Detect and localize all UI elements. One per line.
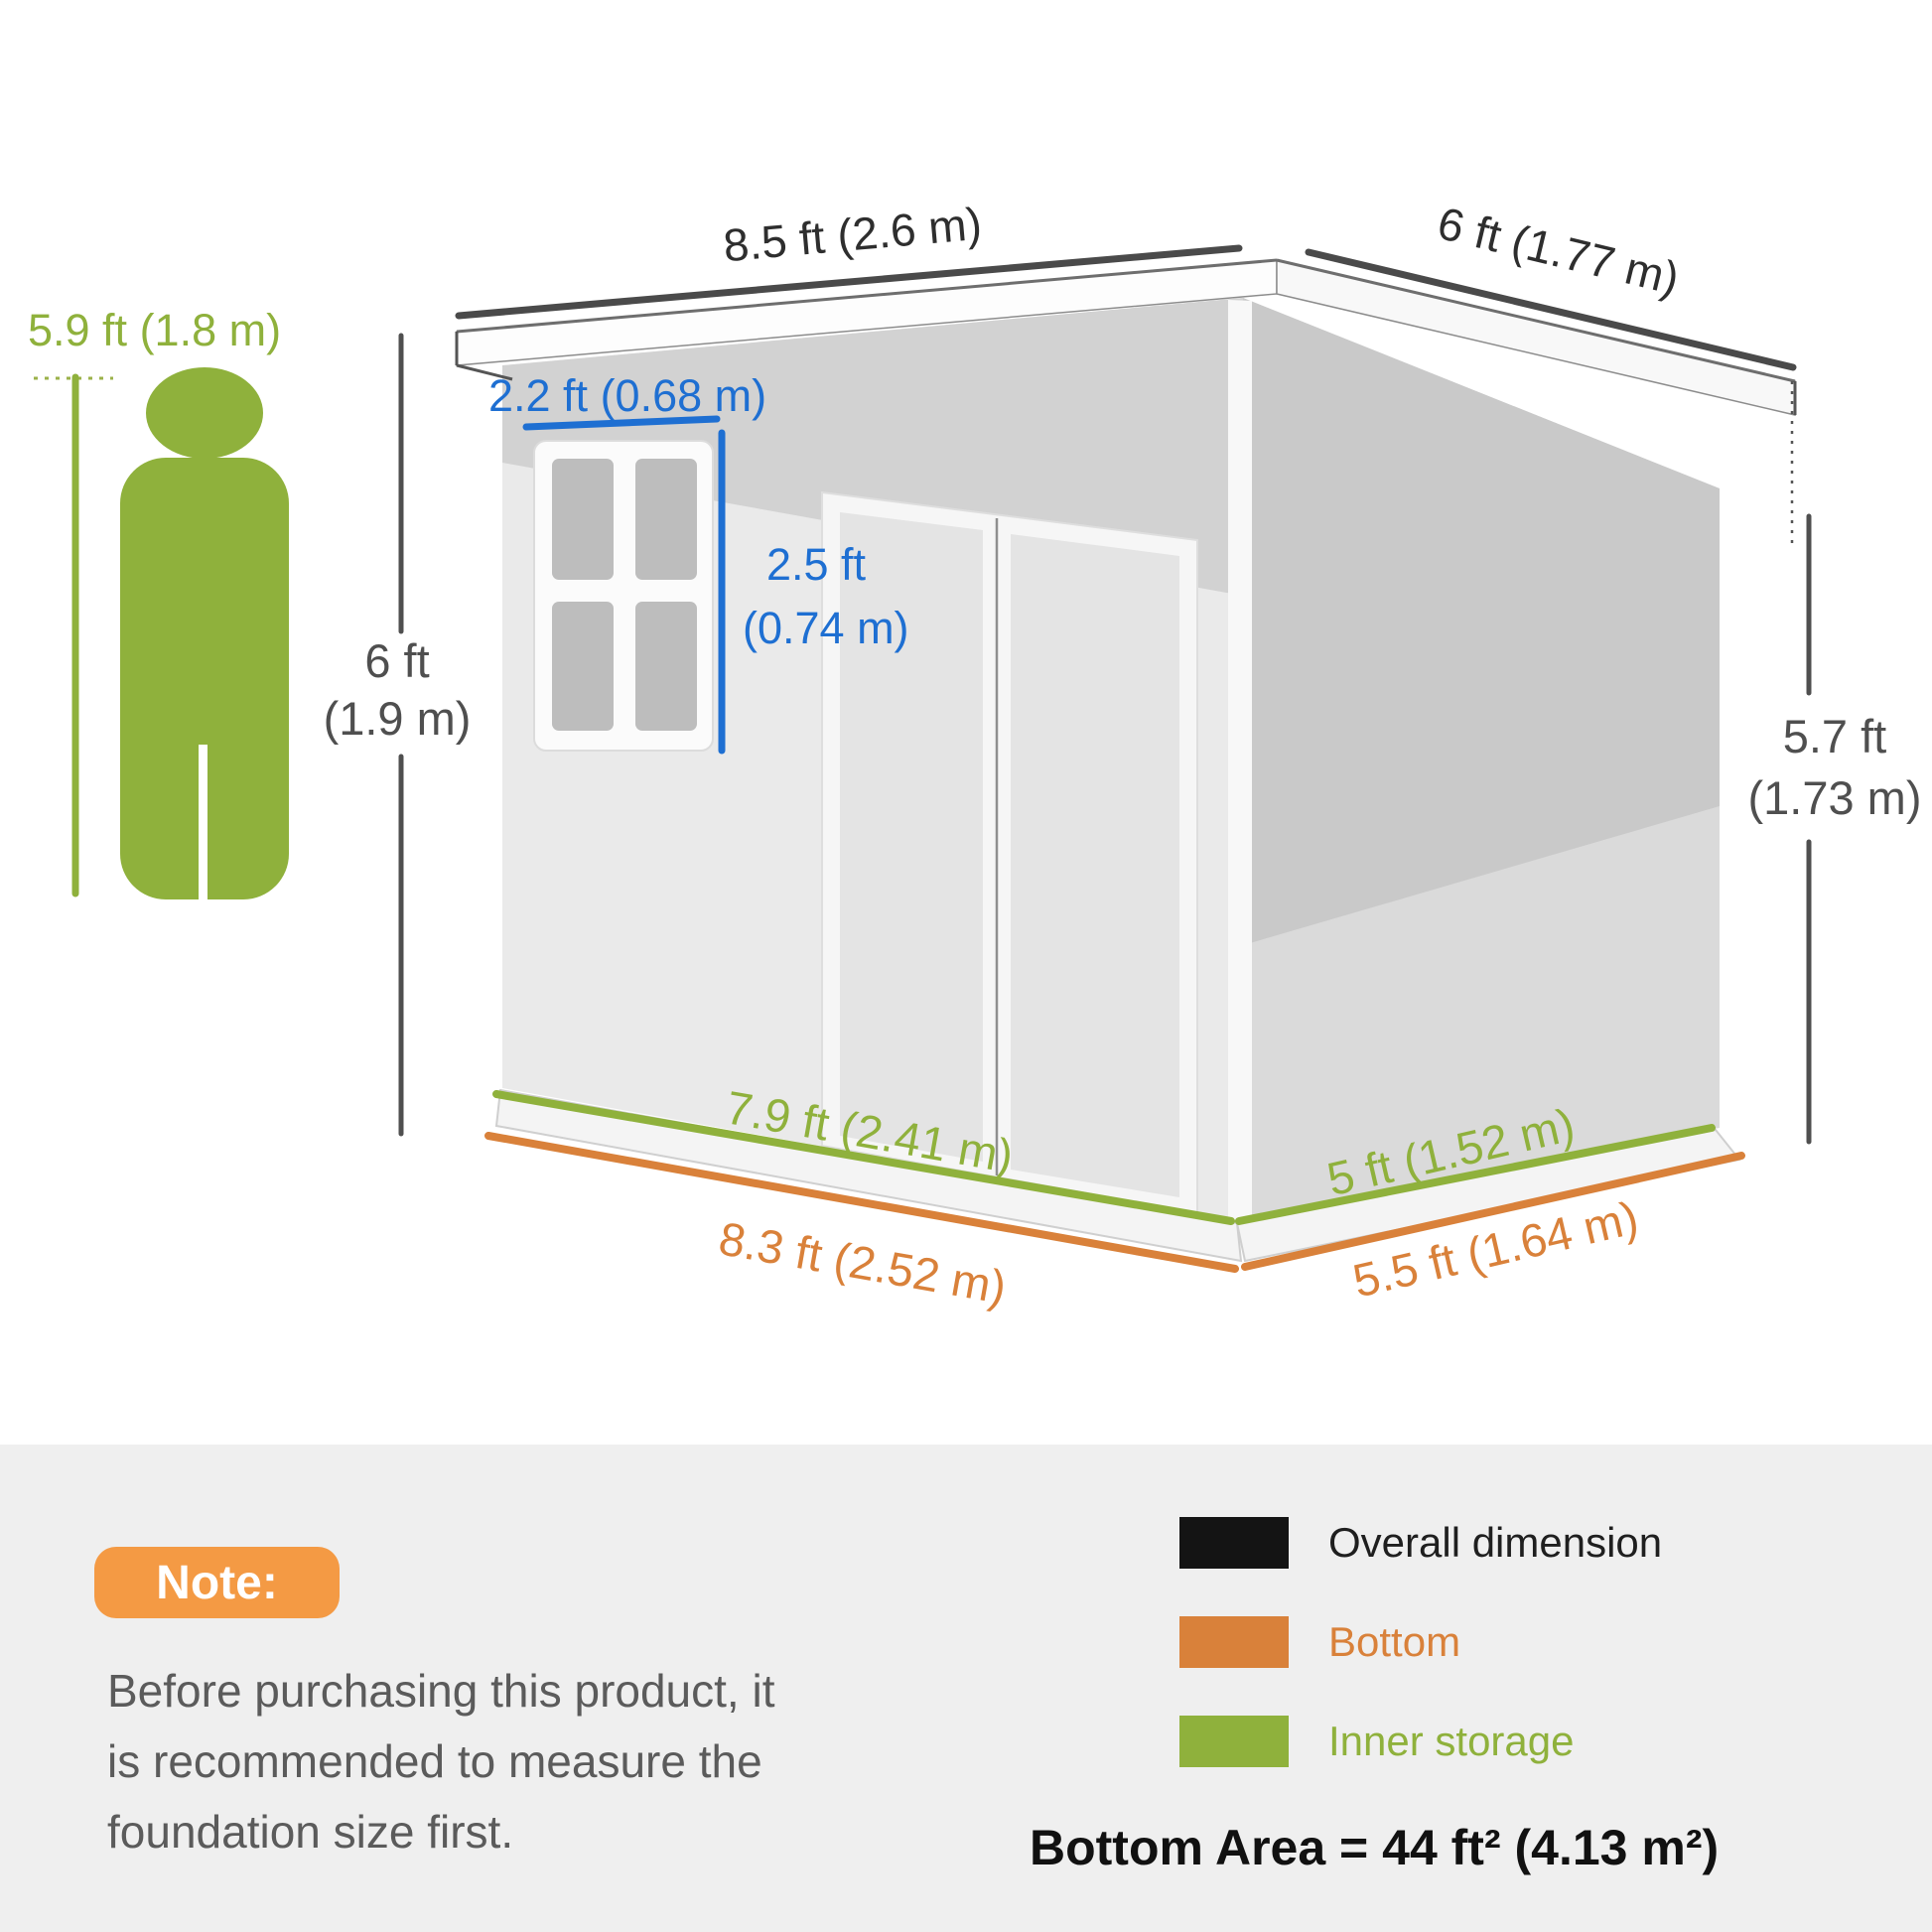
legend-label-inner-storage: Inner storage	[1328, 1716, 1575, 1767]
window-height-label-line2: (0.74 m)	[743, 603, 909, 653]
left-height-label-line2: (1.9 m)	[324, 692, 472, 745]
corner-trim	[1228, 300, 1252, 1224]
right-height-label-line2: (1.73 m)	[1748, 771, 1922, 824]
double-doors	[822, 492, 1197, 1213]
human-figure: 5.9 ft (1.8 m)	[28, 305, 289, 899]
note-text-line1: Before purchasing this product, it	[107, 1656, 1031, 1726]
size-diagram: 5.9 ft (1.8 m)	[0, 0, 1932, 1932]
legend-label-bottom: Bottom	[1328, 1616, 1460, 1668]
note-badge: Note:	[94, 1547, 340, 1618]
window-pane	[635, 459, 697, 580]
note-text-line2: is recommended to measure the	[107, 1726, 1031, 1797]
person-head	[146, 367, 263, 459]
legend-label-overall-dimension: Overall dimension	[1328, 1517, 1662, 1569]
left-height-label-line1: 6 ft	[364, 634, 429, 687]
person-height-label: 5.9 ft (1.8 m)	[28, 305, 281, 355]
note-badge-label: Note:	[156, 1556, 278, 1610]
window-height-label-line1: 2.5 ft	[766, 539, 867, 590]
bottom-area-text: Bottom Area = 44 ft² (4.13 m²)	[1030, 1819, 1719, 1876]
window	[534, 441, 713, 751]
window-pane	[635, 602, 697, 731]
legend-swatch-bottom	[1179, 1616, 1289, 1668]
legend-swatch-inner-storage	[1179, 1716, 1289, 1767]
overall-width-label: 8.5 ft (2.6 m)	[721, 198, 983, 272]
dimension-infographic: 5.9 ft (1.8 m)	[0, 0, 1932, 1932]
door-panel-right	[1011, 534, 1179, 1197]
bottom-width-label: 8.3 ft (2.52 m)	[715, 1211, 1010, 1313]
window-width-label: 2.2 ft (0.68 m)	[488, 370, 766, 421]
right-height-label-line1: 5.7 ft	[1783, 710, 1887, 762]
legend-swatch-overall-dimension	[1179, 1517, 1289, 1569]
note-text-line3: foundation size first.	[107, 1797, 1031, 1867]
window-pane	[552, 459, 614, 580]
note-text: Before purchasing this product, it is re…	[107, 1656, 1031, 1867]
person-leg-divider	[199, 745, 207, 899]
window-pane	[552, 602, 614, 731]
